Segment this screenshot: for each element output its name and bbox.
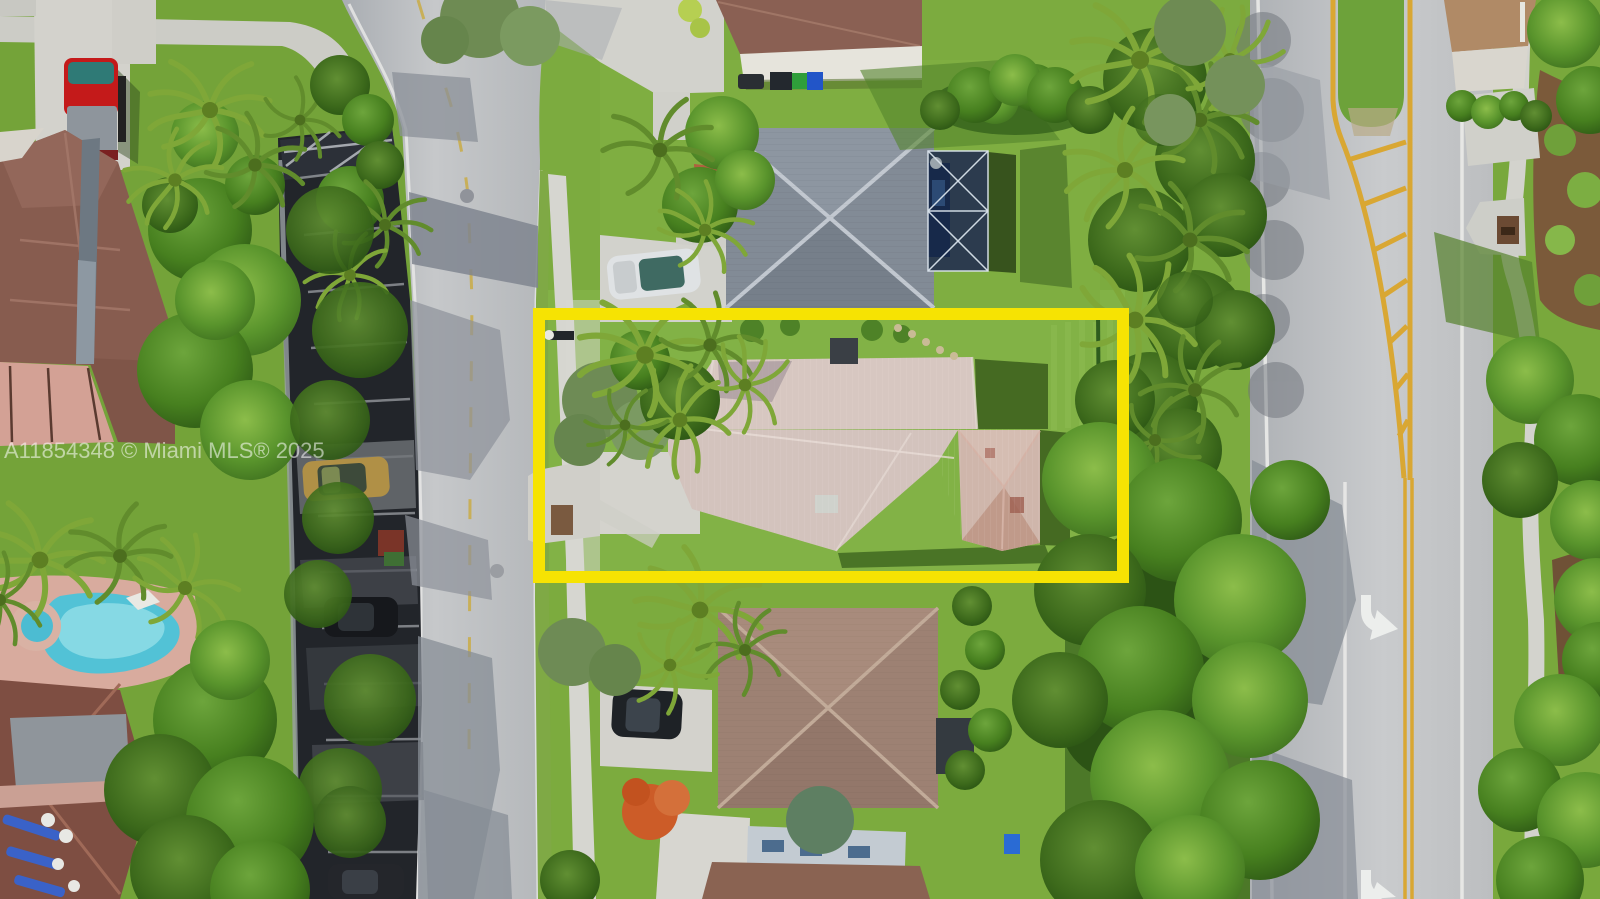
svg-text:A11854348 © Miami MLS® 2025: A11854348 © Miami MLS® 2025 [4,438,325,463]
